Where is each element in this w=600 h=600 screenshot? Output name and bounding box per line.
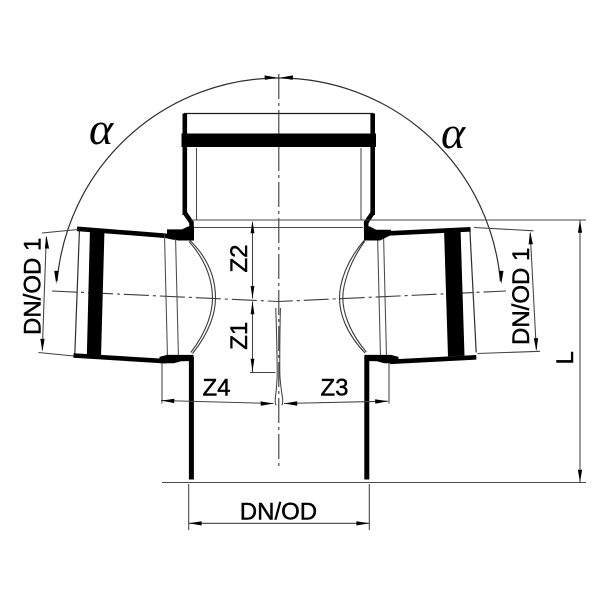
- svg-text:α: α: [441, 107, 466, 158]
- svg-text:DN/OD 1: DN/OD 1: [508, 248, 535, 345]
- svg-text:Z1: Z1: [226, 322, 253, 350]
- svg-text:L: L: [552, 351, 579, 364]
- svg-text:DN/OD 1: DN/OD 1: [19, 238, 46, 335]
- svg-text:Z2: Z2: [226, 244, 253, 272]
- svg-text:α: α: [89, 103, 114, 154]
- svg-text:Z4: Z4: [203, 375, 231, 402]
- svg-text:DN/OD: DN/OD: [240, 498, 317, 525]
- svg-text:Z3: Z3: [321, 375, 349, 402]
